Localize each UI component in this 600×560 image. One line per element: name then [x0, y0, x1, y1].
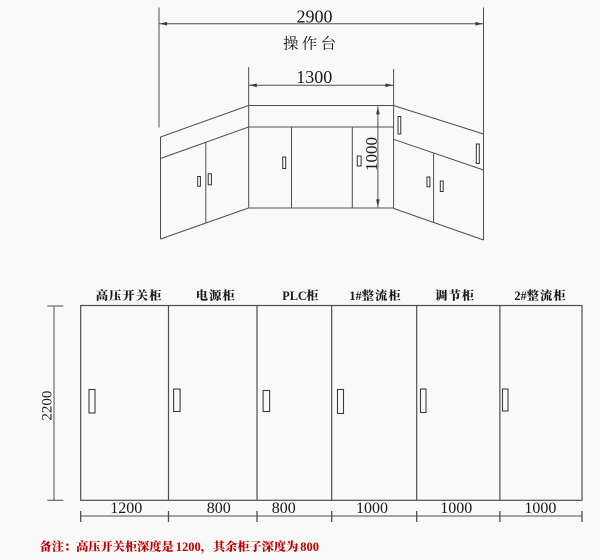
- svg-text:1000: 1000: [362, 137, 381, 171]
- svg-text:1200: 1200: [176, 540, 201, 554]
- svg-text:1#: 1#: [349, 289, 361, 303]
- svg-text:1200: 1200: [110, 500, 142, 517]
- svg-text:2900: 2900: [297, 7, 333, 27]
- svg-text:2200: 2200: [39, 391, 55, 421]
- svg-text:1300: 1300: [296, 67, 332, 87]
- svg-text:800: 800: [300, 540, 319, 554]
- svg-text:1000: 1000: [440, 500, 472, 517]
- svg-text:PLC: PLC: [282, 289, 307, 303]
- svg-text:800: 800: [207, 500, 231, 517]
- svg-text:1000: 1000: [356, 500, 388, 517]
- svg-text:1000: 1000: [524, 500, 556, 517]
- svg-text:2#: 2#: [514, 289, 526, 303]
- svg-text:800: 800: [272, 500, 296, 517]
